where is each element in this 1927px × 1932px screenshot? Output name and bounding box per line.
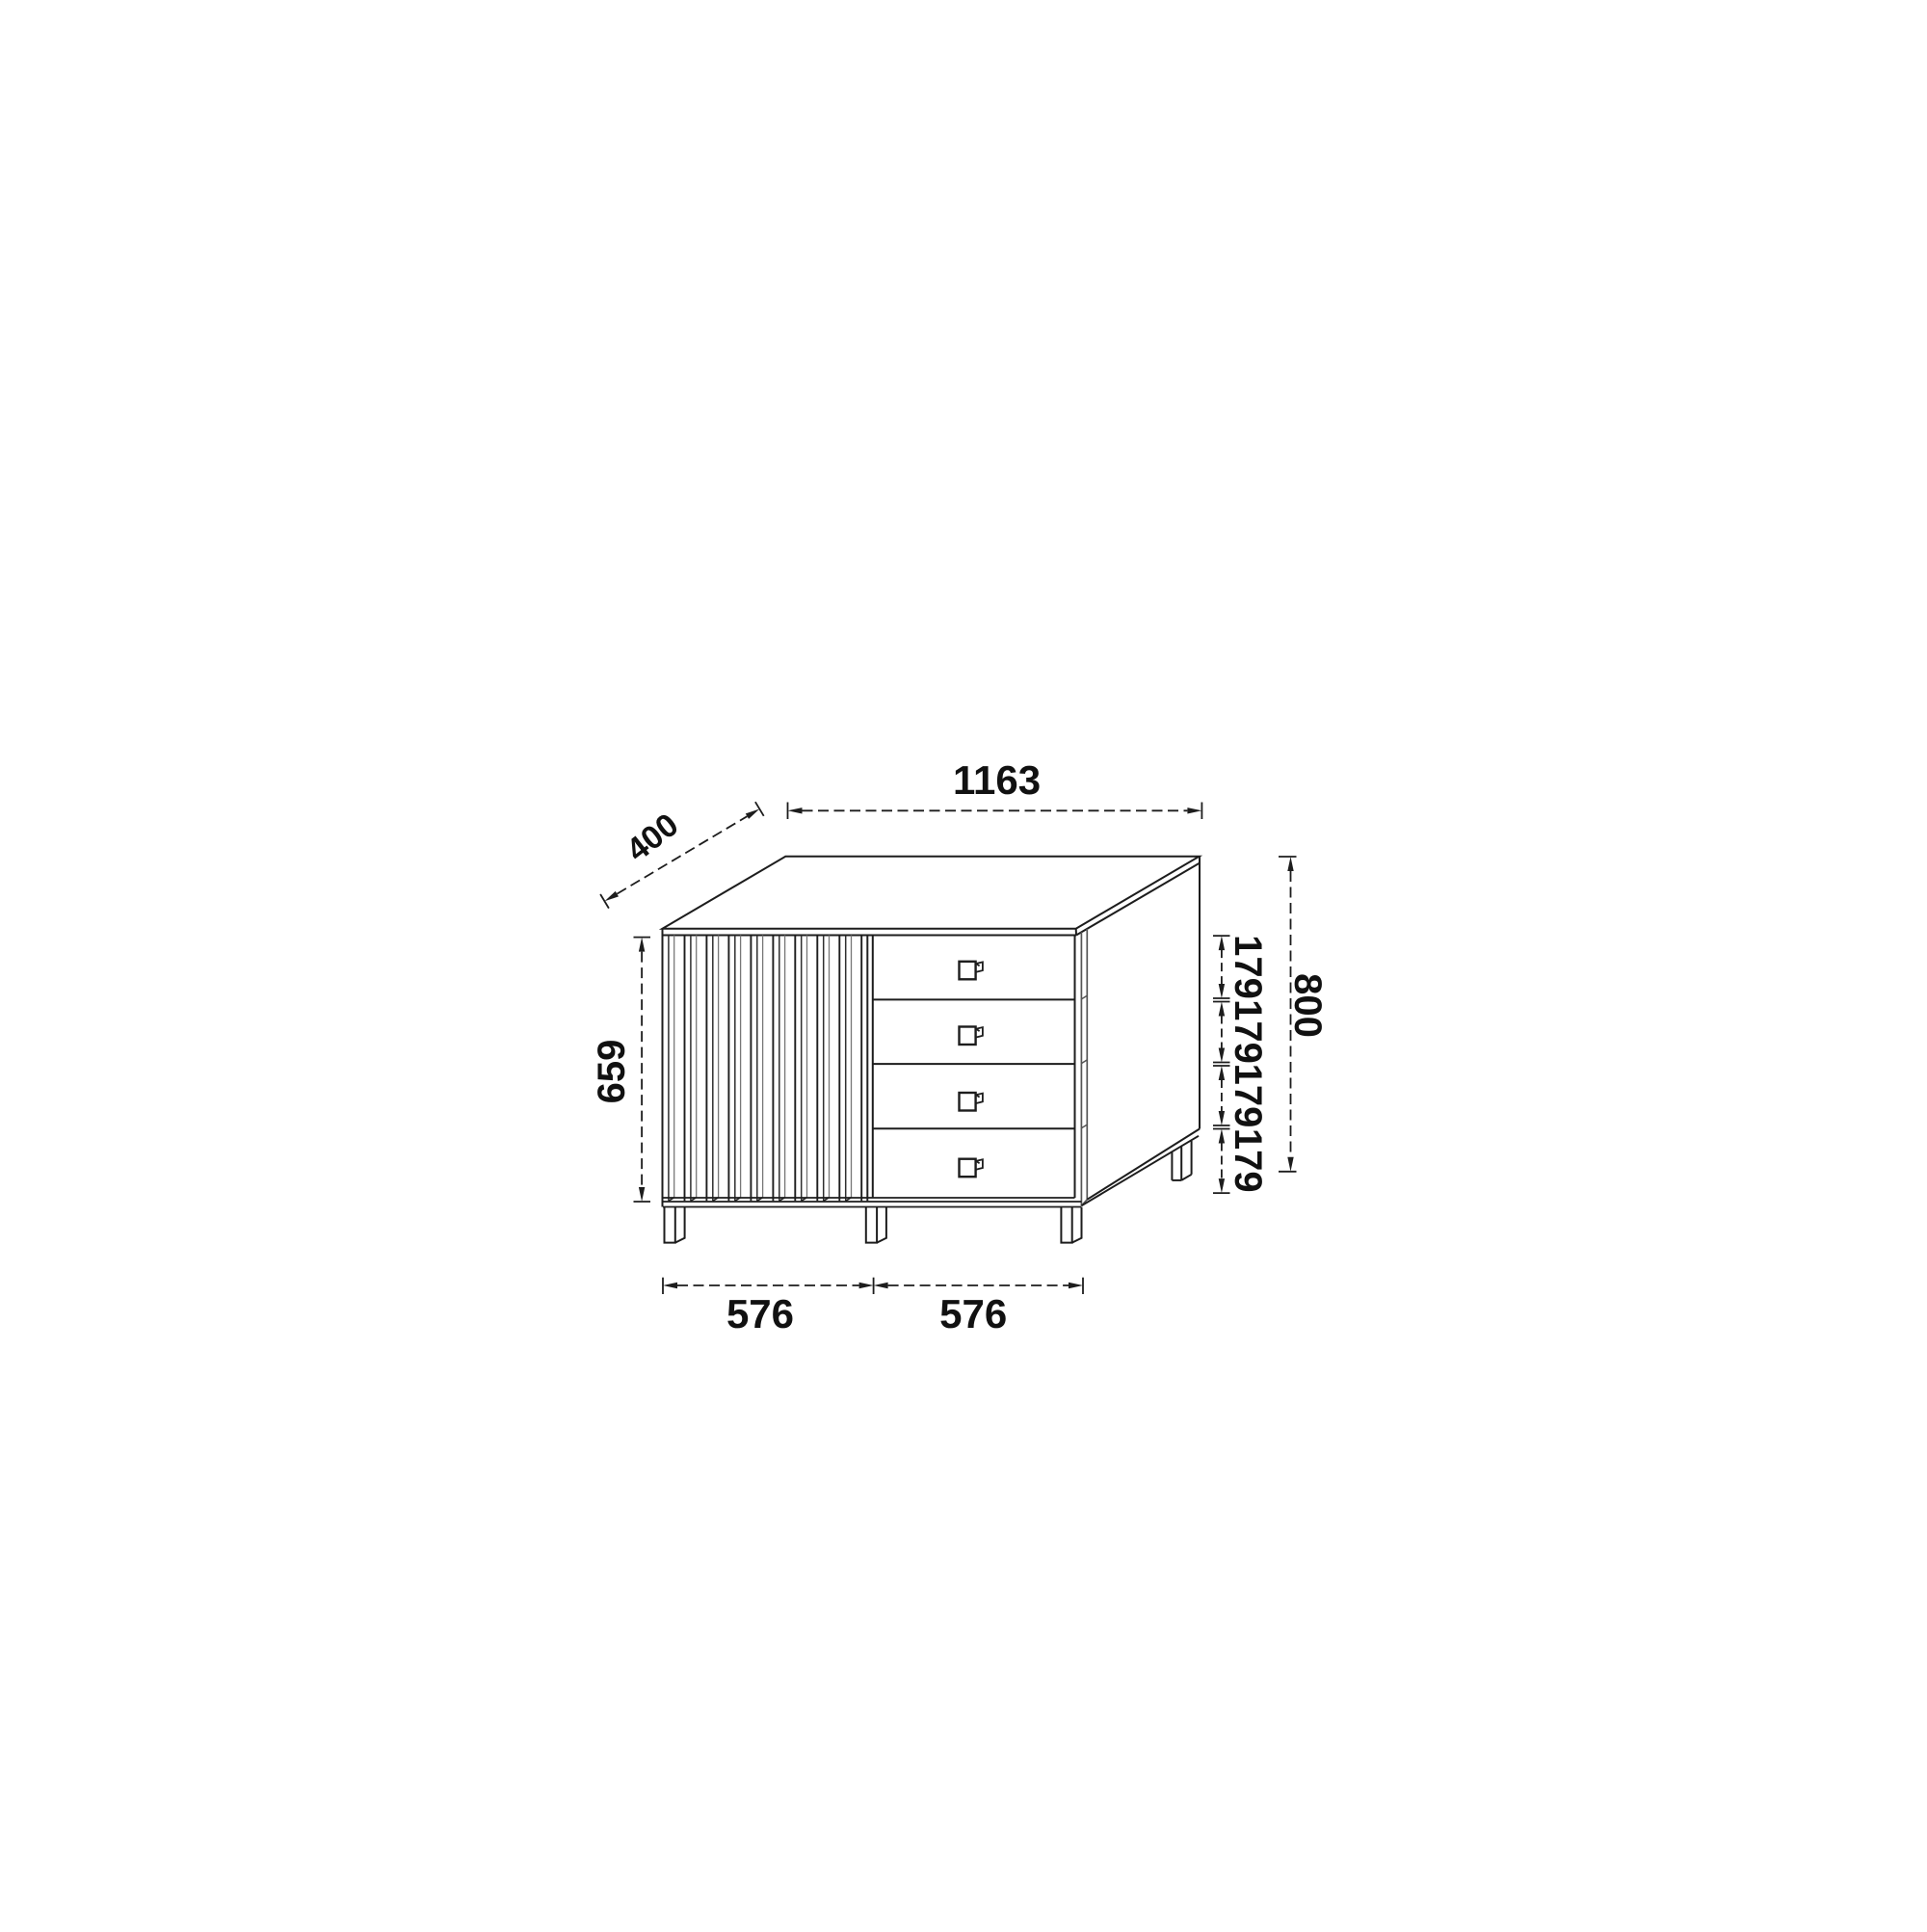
svg-text:179: 179 (1227, 935, 1269, 999)
svg-text:576: 576 (939, 1291, 1007, 1337)
svg-text:179: 179 (1227, 999, 1269, 1064)
svg-text:1163: 1163 (953, 757, 1041, 803)
svg-text:576: 576 (726, 1291, 794, 1337)
svg-text:800: 800 (1286, 973, 1329, 1038)
svg-text:179: 179 (1227, 1128, 1269, 1193)
svg-text:659: 659 (591, 1040, 633, 1104)
svg-text:179: 179 (1227, 1064, 1269, 1128)
